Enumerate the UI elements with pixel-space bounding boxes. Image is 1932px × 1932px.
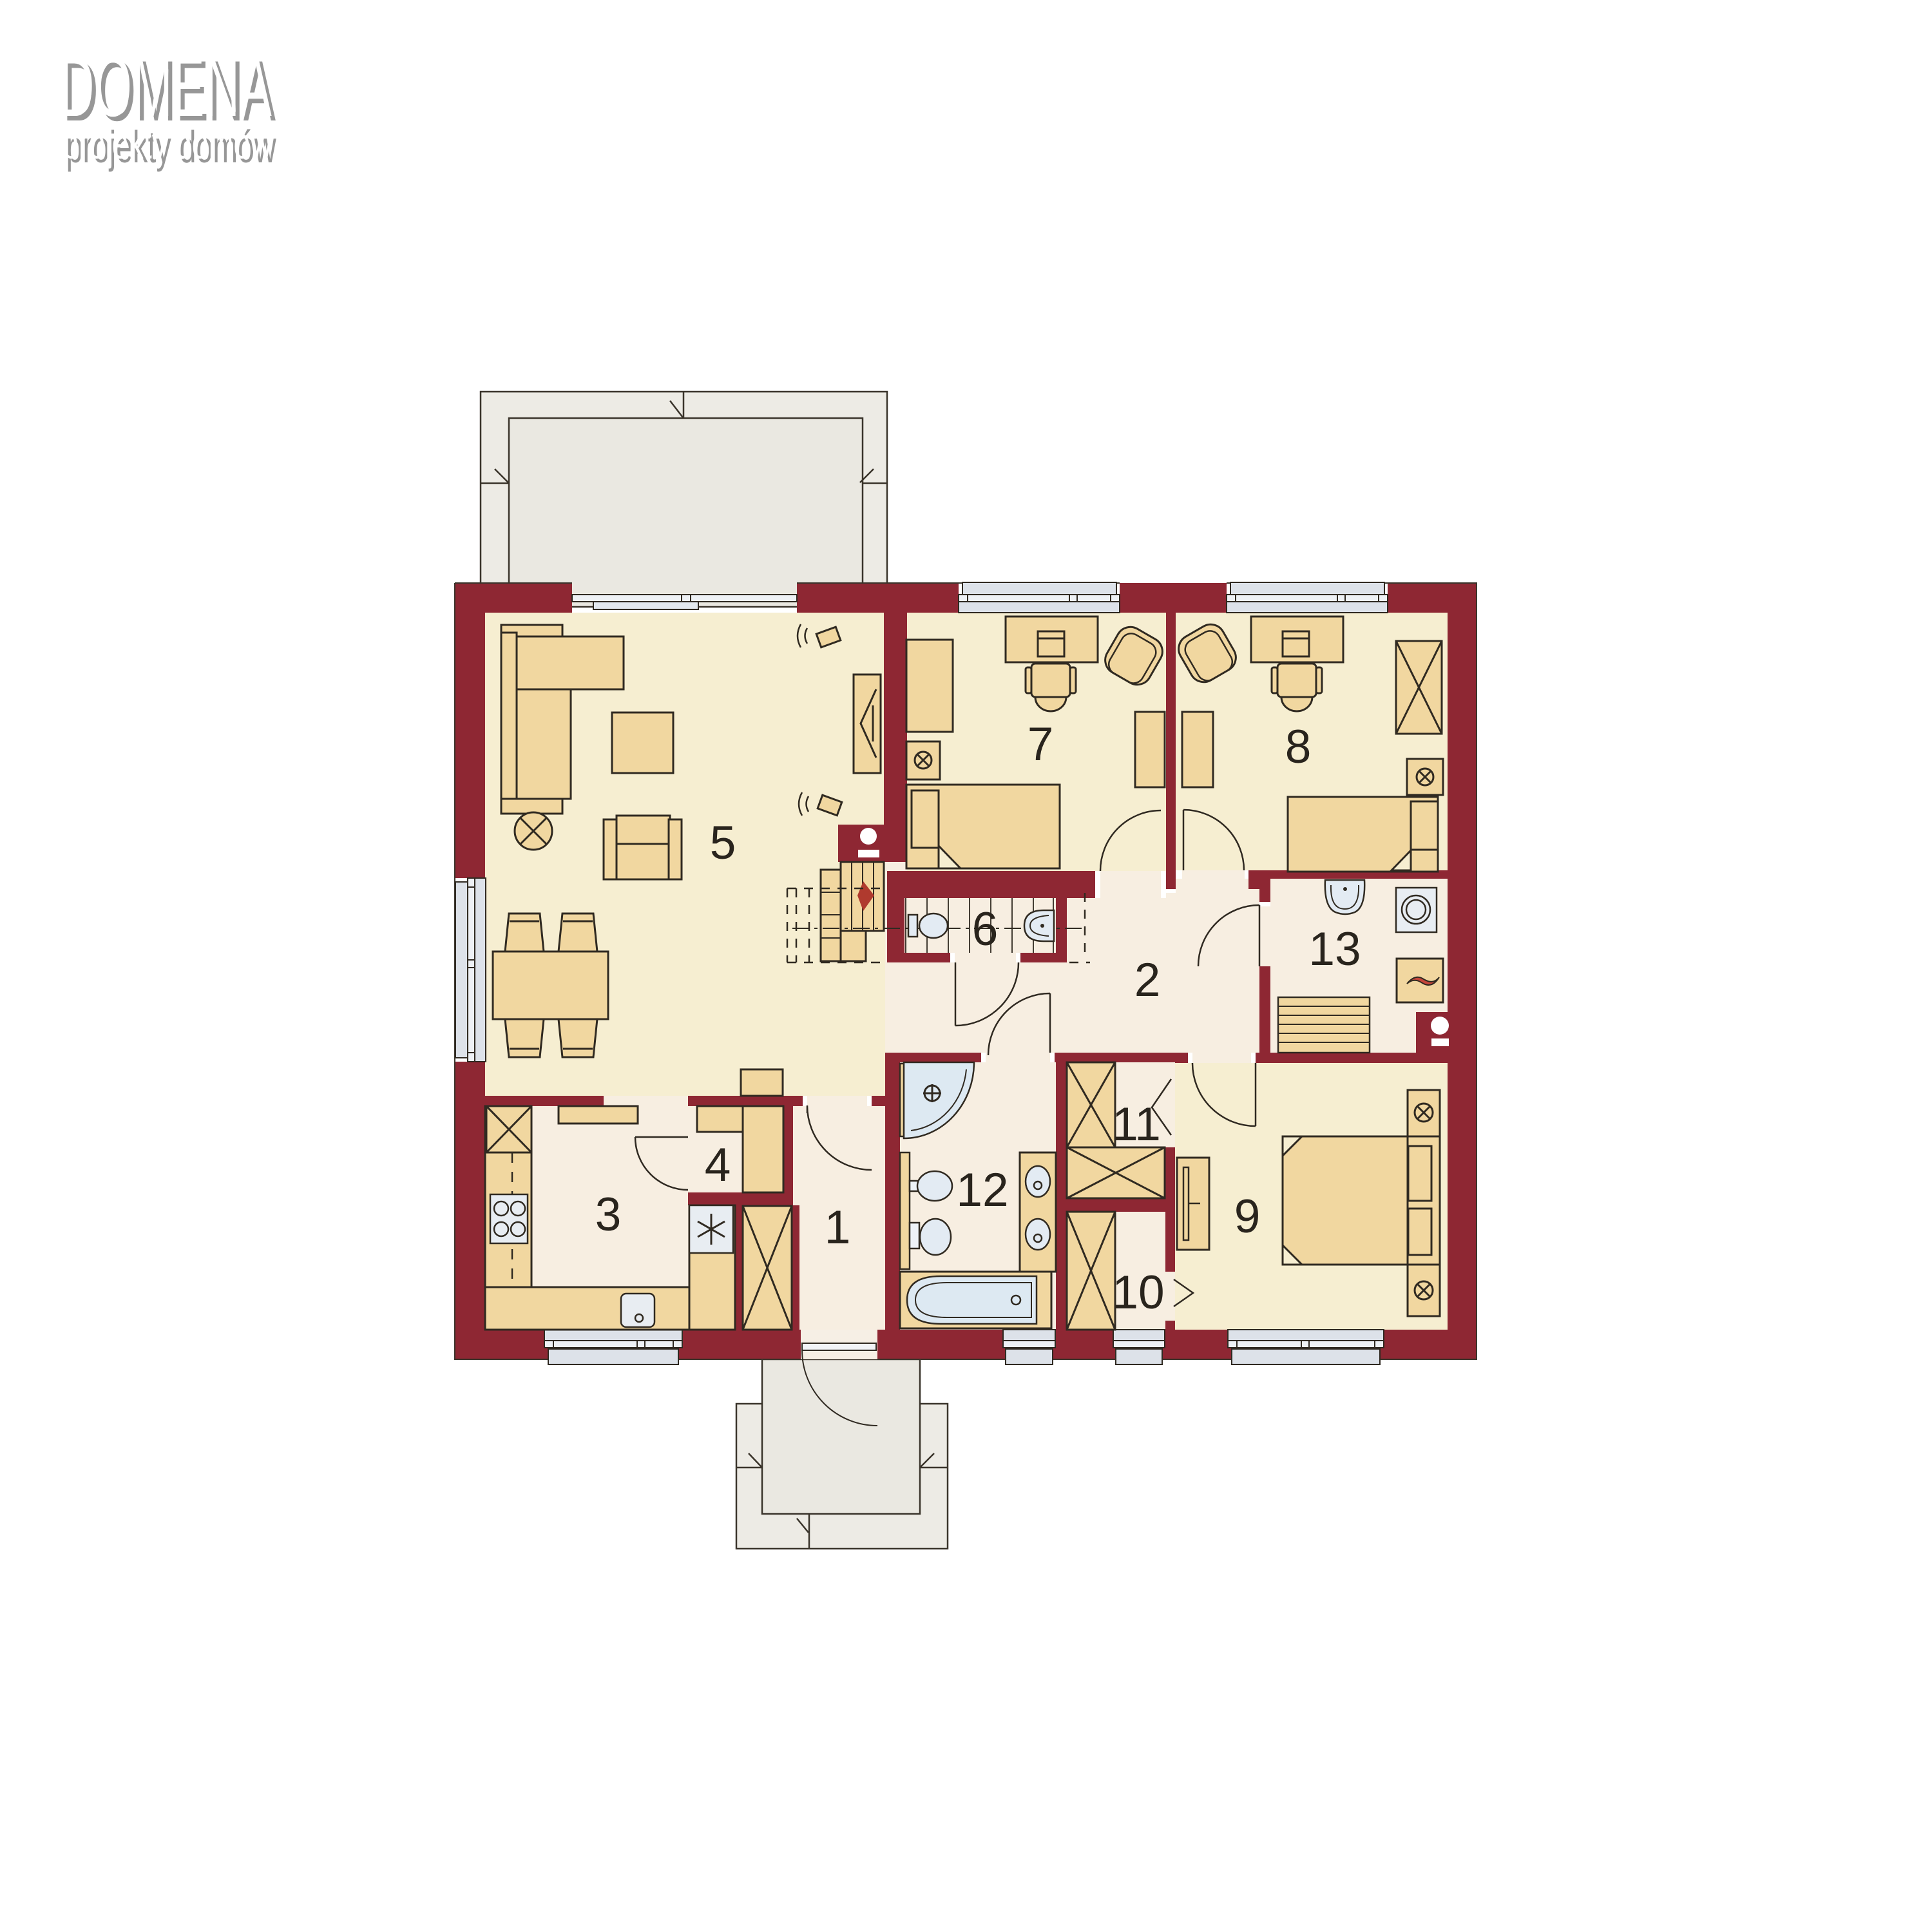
svg-text:8: 8 xyxy=(1285,721,1312,773)
svg-text:1: 1 xyxy=(825,1201,851,1254)
svg-text:12: 12 xyxy=(956,1164,1008,1216)
svg-text:4: 4 xyxy=(705,1139,731,1191)
svg-text:7: 7 xyxy=(1028,718,1054,770)
svg-text:3: 3 xyxy=(595,1189,622,1241)
svg-text:13: 13 xyxy=(1308,923,1361,975)
svg-text:9: 9 xyxy=(1234,1191,1261,1243)
svg-text:10: 10 xyxy=(1112,1267,1164,1319)
svg-text:projekty domów: projekty domów xyxy=(62,117,273,168)
svg-text:6: 6 xyxy=(972,903,999,955)
svg-text:2: 2 xyxy=(1134,954,1161,1006)
svg-text:5: 5 xyxy=(710,817,736,869)
svg-text:11: 11 xyxy=(1112,1098,1161,1151)
